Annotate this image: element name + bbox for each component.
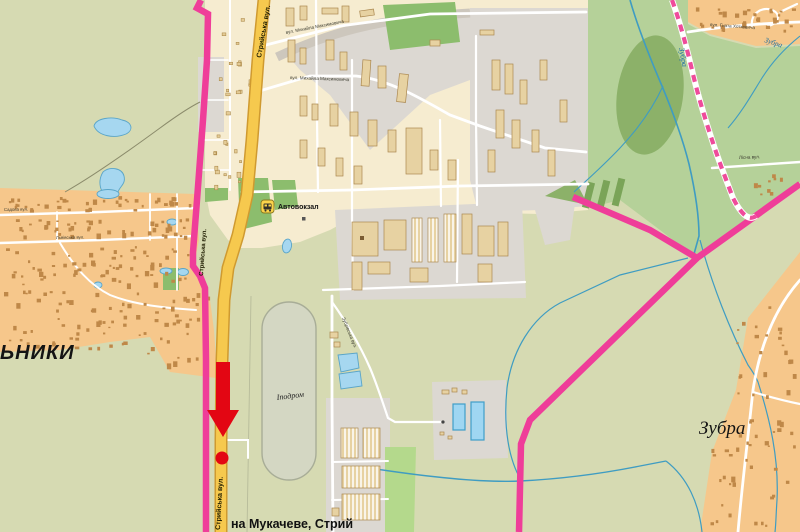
label-street-lvivska: Львівська вул.	[56, 235, 85, 240]
map-canvas[interactable]: Стрийська вул. Стрийська вул. Стрийська …	[0, 0, 800, 532]
map-viewport[interactable]: Стрийська вул. Стрийська вул. Стрийська …	[0, 0, 800, 532]
label-poi-avtovokzal: Автовокзал	[278, 204, 319, 211]
label-direction-sign: на Мукачеве, Стрий	[231, 517, 353, 531]
label-street-lisna: Лісна вул.	[739, 154, 760, 160]
road-end-dot	[441, 420, 444, 423]
label-district-partial: ЬНИКИ	[0, 342, 75, 364]
label-street-sadova: Садова вул.	[4, 207, 28, 212]
small-poi-dot	[302, 217, 306, 221]
label-village-zubra: Зубра	[699, 418, 745, 439]
bus-station-icon	[261, 200, 274, 213]
marker-dot	[216, 452, 229, 465]
